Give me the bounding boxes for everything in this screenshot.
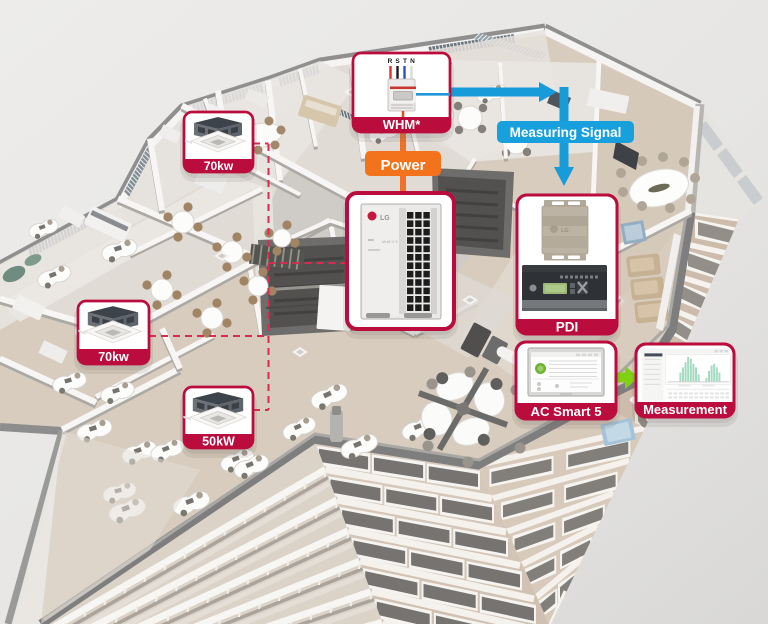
svg-text:70kw: 70kw bbox=[98, 350, 129, 364]
svg-text:T: T bbox=[403, 58, 407, 65]
svg-text:Power: Power bbox=[380, 157, 425, 174]
svg-text:Multi V 5: Multi V 5 bbox=[382, 239, 398, 244]
svg-text:Measuring Signal: Measuring Signal bbox=[510, 125, 622, 140]
svg-text:Measurement: Measurement bbox=[643, 402, 727, 417]
svg-text:WHM*: WHM* bbox=[383, 117, 421, 132]
svg-text:S: S bbox=[395, 58, 400, 65]
svg-text:70kw: 70kw bbox=[204, 159, 234, 173]
svg-text:50kW: 50kW bbox=[202, 435, 235, 449]
svg-text:LG: LG bbox=[380, 215, 390, 222]
svg-text:AC Smart 5: AC Smart 5 bbox=[530, 404, 601, 419]
svg-text:N: N bbox=[410, 58, 415, 65]
svg-text:PDI: PDI bbox=[556, 319, 579, 334]
svg-text:R: R bbox=[388, 58, 393, 65]
svg-text:LG: LG bbox=[561, 228, 569, 234]
